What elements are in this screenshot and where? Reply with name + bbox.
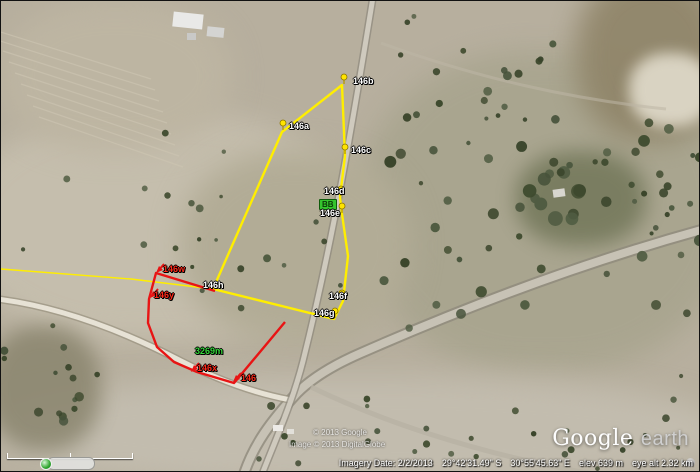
placemark-markers[interactable]	[150, 74, 348, 382]
google-earth-viewport[interactable]: 146b146a146c146dBB146e146f146g146h146w14…	[0, 0, 700, 472]
parcel-boundaries[interactable]	[1, 85, 348, 383]
elevation: elev 639 m	[579, 458, 623, 468]
pushpin-icon[interactable]	[332, 308, 338, 318]
tour-guide-icon	[40, 458, 52, 470]
satellite-map[interactable]	[1, 1, 700, 472]
arrow-marker-icon[interactable]	[156, 264, 164, 273]
logo-google: Google	[552, 426, 633, 451]
latitude: 29°42'31.49" S	[442, 458, 502, 468]
logo-earth: earth	[641, 428, 689, 450]
eye-altitude: eye alt 2.32 km	[632, 458, 693, 468]
pushpin-icon[interactable]	[341, 74, 347, 84]
imagery-date: Imagery Date: 2/2/2013	[339, 458, 433, 468]
copyright-google: © 2013 Google	[313, 428, 367, 437]
status-bar: Imagery Date: 2/2/201329°42'31.49" S30°5…	[330, 458, 693, 468]
field-rows	[1, 29, 183, 167]
roads	[1, 1, 700, 472]
google-earth-logo: Google earth	[552, 426, 689, 451]
tour-guide-button[interactable]	[47, 457, 95, 470]
longitude: 30°55'45.63" E	[510, 458, 570, 468]
copyright-imagery: Image © 2013 DigitalGlobe	[289, 440, 385, 449]
